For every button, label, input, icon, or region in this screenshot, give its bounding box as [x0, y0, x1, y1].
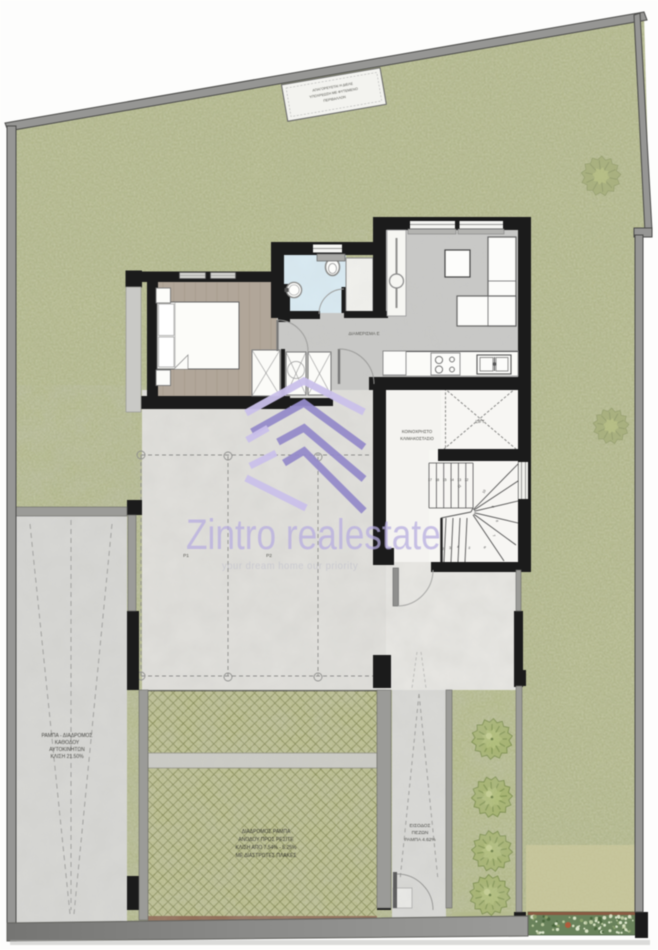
svg-text:4: 4: [457, 545, 459, 549]
svg-text:ΚΛΙΜΑΚΟΣΤΑΣΙΟ: ΚΛΙΜΑΚΟΣΤΑΣΙΟ: [400, 436, 434, 441]
svg-text:16: 16: [435, 478, 439, 482]
svg-text:14: 14: [450, 478, 454, 482]
svg-text:17: 17: [428, 478, 432, 482]
svg-text:12: 12: [465, 478, 469, 482]
svg-text:15: 15: [443, 478, 447, 482]
svg-text:ΔΙΑΜΕΡΙΣΜΑ Ε: ΔΙΑΜΕΡΙΣΜΑ Ε: [348, 331, 379, 336]
svg-text:ΚΟΙΝΟΧΡΗΣΤΟ: ΚΟΙΝΟΧΡΗΣΤΟ: [402, 429, 433, 434]
svg-text:LIFT: LIFT: [475, 419, 484, 424]
svg-text:3: 3: [449, 546, 451, 550]
svg-text:2: 2: [442, 547, 444, 551]
svg-text:Zintro realestate: Zintro realestate: [186, 511, 441, 559]
svg-text:your dream home our priority: your dream home our priority: [222, 561, 358, 573]
svg-text:13: 13: [457, 478, 461, 482]
